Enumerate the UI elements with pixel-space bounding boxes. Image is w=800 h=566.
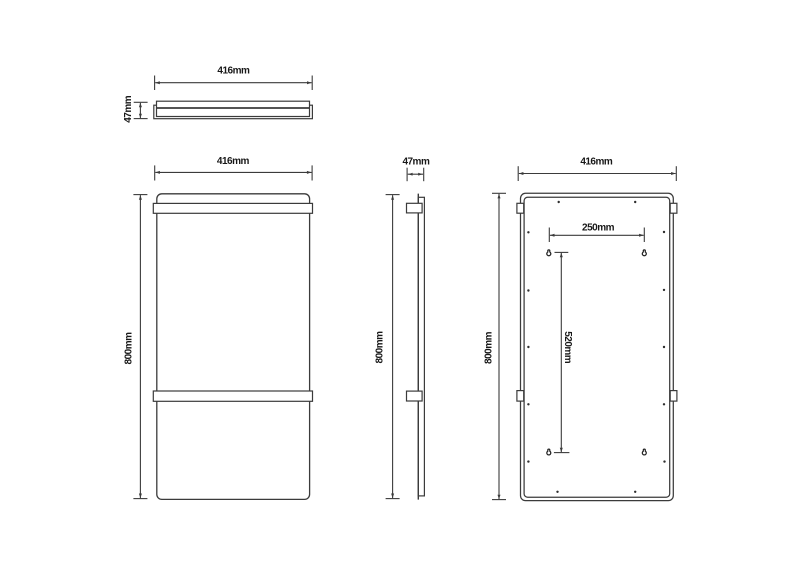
svg-text:800mm: 800mm [124,332,135,365]
svg-text:47mm: 47mm [123,95,134,123]
svg-text:520mm: 520mm [562,331,573,364]
svg-text:47mm: 47mm [402,156,430,167]
svg-text:800mm: 800mm [484,331,495,364]
svg-text:416mm: 416mm [580,156,613,167]
svg-text:416mm: 416mm [217,66,250,77]
svg-text:800mm: 800mm [375,331,386,364]
svg-text:250mm: 250mm [582,223,615,234]
svg-text:416mm: 416mm [217,156,250,167]
